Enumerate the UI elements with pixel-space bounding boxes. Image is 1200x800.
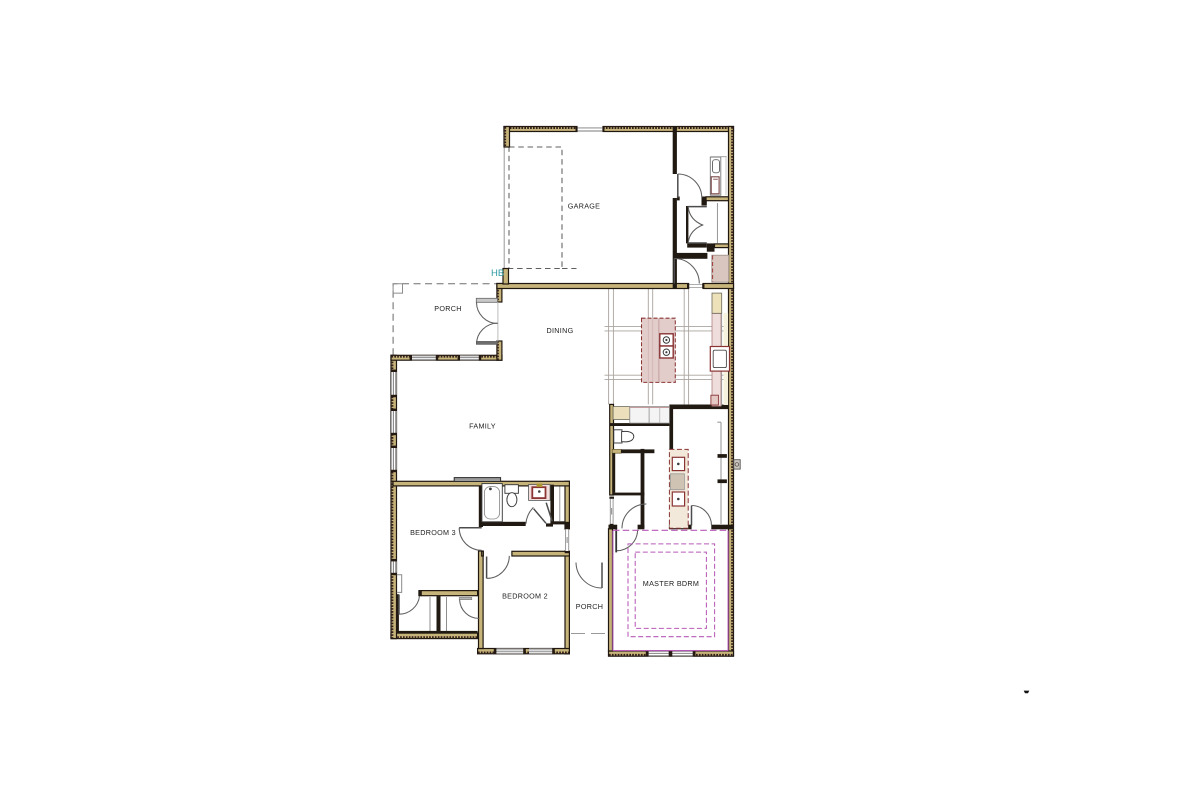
svg-text:FAMILY: FAMILY — [469, 421, 496, 430]
svg-text:PORCH: PORCH — [434, 304, 461, 313]
svg-text:BEDROOM 3: BEDROOM 3 — [410, 528, 456, 537]
svg-text:BEDROOM 2: BEDROOM 2 — [502, 592, 548, 601]
svg-text:MASTER BDRM: MASTER BDRM — [643, 579, 699, 588]
svg-text:PORCH: PORCH — [576, 602, 603, 611]
svg-text:HB: HB — [491, 268, 504, 279]
svg-text:DINING: DINING — [547, 326, 574, 335]
svg-text:GARAGE: GARAGE — [568, 202, 601, 211]
